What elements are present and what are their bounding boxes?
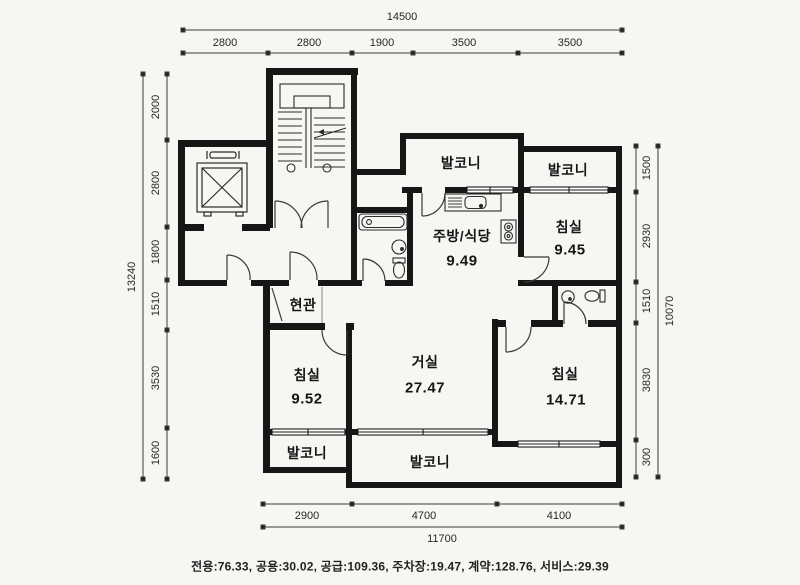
room-area-living-room: 27.47: [405, 380, 445, 397]
door-bedroom-top-right: [524, 257, 549, 282]
toilet-main: [393, 258, 405, 278]
room-label-balcony-bottom-left: 발코니: [287, 443, 327, 463]
dim-left-seg-2: 2800: [150, 171, 162, 195]
room-label-balcony-top-right: 발코니: [548, 160, 588, 180]
room-label-entrance: 현관: [290, 295, 317, 315]
sink-main: [392, 240, 406, 254]
stove: [501, 220, 516, 243]
bathtub: [359, 214, 407, 230]
dim-left-seg-1: 2000: [150, 95, 162, 119]
floor-plan-page: 발코니 발코니 주방/식당 9.49 침실 9.45 현관 침실 9.52 거실…: [0, 0, 800, 585]
sink-small: [562, 291, 574, 303]
dim-top-seg-4: 3500: [452, 37, 476, 49]
elevator: [197, 151, 247, 216]
dim-left-seg-5: 3530: [150, 366, 162, 390]
dim-top-seg-3: 1900: [370, 37, 394, 49]
front-door-leaf: [272, 288, 282, 321]
dim-bottom-total: 11700: [427, 533, 457, 545]
toilet-small: [585, 290, 605, 302]
dim-bottom-seg-1: 2900: [295, 510, 319, 522]
stair-treads-right: [314, 118, 345, 167]
room-area-kitchen-dining: 9.49: [446, 253, 477, 270]
bathroom-main-fixtures: [359, 214, 407, 278]
room-label-bedroom-bottom-right: 침실: [552, 364, 579, 384]
dim-right-total: 10070: [664, 296, 676, 327]
room-label-balcony-bottom-center: 발코니: [410, 452, 450, 472]
door-double-stair-hall: [275, 201, 328, 228]
dish-rack: [448, 198, 462, 207]
stair-break-line: [314, 128, 346, 138]
door-unit-entrance: [290, 252, 317, 280]
door-bathroom-small: [564, 302, 586, 324]
staircase: [278, 84, 346, 172]
window-living-room: [358, 429, 488, 435]
dim-right-seg-3: 1510: [641, 289, 653, 313]
room-area-bedroom-bottom-right: 14.71: [546, 392, 586, 409]
stair-rails: [306, 108, 311, 168]
room-label-balcony-top-center: 발코니: [441, 153, 481, 173]
window-bedroom-bottom-right: [518, 441, 600, 447]
kitchen-sink: [465, 197, 486, 209]
room-label-kitchen-dining: 주방/식당: [433, 226, 491, 246]
room-label-living-room: 거실: [412, 352, 439, 372]
window-right-balcony: [530, 187, 608, 193]
dim-left-seg-3: 1800: [150, 240, 162, 264]
dim-right-seg-1: 1500: [641, 156, 653, 180]
dim-top-total: 14500: [387, 11, 418, 23]
area-summary: 전용:76.33, 공용:30.02, 공급:109.36, 주차장:19.47…: [191, 558, 609, 575]
door-kitchen-balcony: [422, 193, 445, 216]
bathroom-small-fixtures: [562, 290, 605, 303]
dim-left-seg-4: 1510: [150, 292, 162, 316]
room-area-bedroom-top-right: 9.45: [554, 242, 585, 259]
dim-bottom-seg-2: 4700: [412, 510, 436, 522]
dim-right-seg-4: 3830: [641, 368, 653, 392]
dim-left-total: 13240: [126, 262, 138, 293]
dim-right-seg-5: 300: [641, 448, 653, 466]
dim-top-seg-2: 2800: [297, 37, 321, 49]
door-bedroom-left: [322, 330, 347, 355]
room-label-bedroom-top-right: 침실: [556, 217, 583, 237]
window-kitchen-balcony: [467, 187, 513, 193]
elevator-counterweight: [207, 151, 239, 159]
dim-top-seg-1: 2800: [213, 37, 237, 49]
window-bedroom-left: [272, 429, 345, 435]
dim-right-seg-2: 2930: [641, 224, 653, 248]
dim-bottom-seg-3: 4100: [547, 510, 571, 522]
door-bathroom-main: [363, 259, 385, 281]
door-corridor-left: [227, 255, 250, 280]
room-area-bedroom-left: 9.52: [291, 391, 322, 408]
door-bedroom-bottom-right: [506, 327, 531, 352]
dim-left-seg-6: 1600: [150, 441, 162, 465]
dimension-lines: [141, 28, 660, 529]
floor-plan-drawing: [0, 0, 800, 585]
stair-treads-left: [278, 112, 302, 161]
room-label-bedroom-left: 침실: [294, 365, 321, 385]
dim-top-seg-5: 3500: [558, 37, 582, 49]
